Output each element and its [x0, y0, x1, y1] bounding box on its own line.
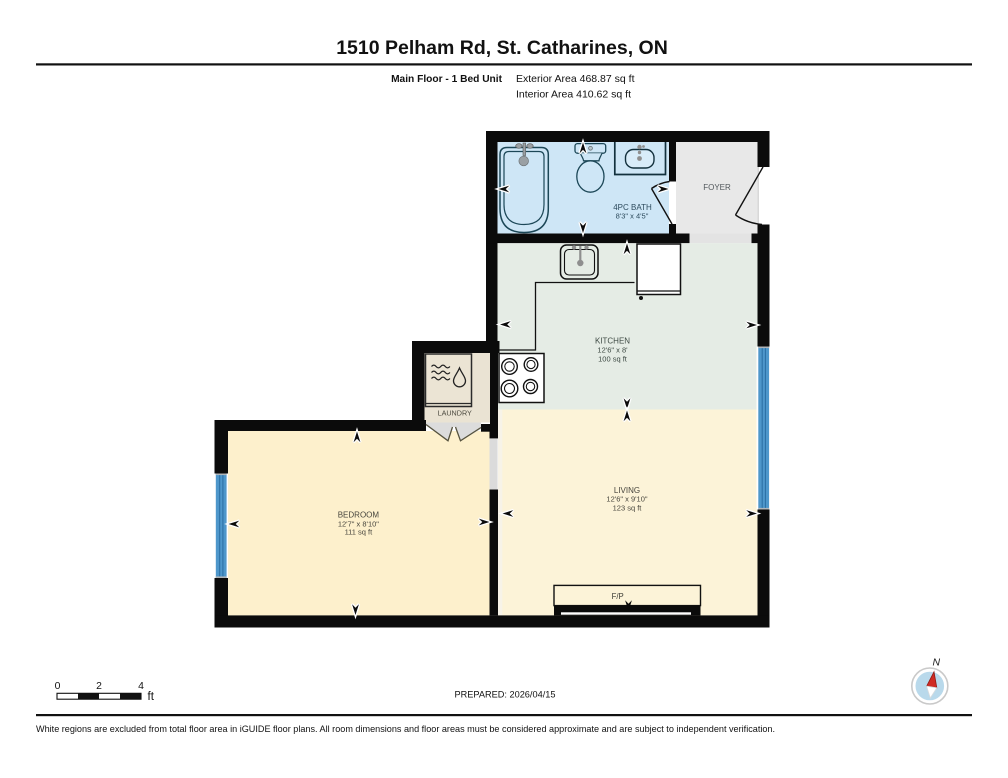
svg-text:123 sq ft: 123 sq ft [613, 503, 643, 512]
svg-text:4: 4 [138, 681, 144, 692]
svg-text:0: 0 [55, 681, 61, 692]
svg-text:LAUNDRY: LAUNDRY [438, 409, 472, 418]
svg-text:N: N [933, 656, 941, 668]
svg-text:111 sq ft: 111 sq ft [345, 528, 374, 537]
svg-text:F/P: F/P [612, 592, 624, 601]
svg-text:White regions are excluded fro: White regions are excluded from total fl… [36, 724, 775, 734]
svg-text:Main Floor - 1 Bed Unit: Main Floor - 1 Bed Unit [391, 74, 503, 85]
svg-text:12'6" x 9'10": 12'6" x 9'10" [606, 495, 647, 504]
svg-text:2: 2 [96, 681, 102, 692]
svg-text:12'6" x 8': 12'6" x 8' [597, 345, 628, 354]
svg-text:KITCHEN: KITCHEN [595, 336, 630, 345]
svg-text:FOYER: FOYER [703, 183, 731, 192]
svg-text:Exterior Area 468.87 sq ft: Exterior Area 468.87 sq ft [516, 73, 635, 85]
svg-text:LIVING: LIVING [614, 486, 640, 495]
svg-text:100 sq ft: 100 sq ft [598, 354, 628, 363]
svg-text:1510 Pelham Rd, St. Catharines: 1510 Pelham Rd, St. Catharines, ON [336, 37, 668, 59]
svg-text:ft: ft [148, 691, 155, 703]
svg-text:BEDROOM: BEDROOM [338, 511, 380, 520]
svg-text:8'3" x 4'5": 8'3" x 4'5" [616, 212, 649, 221]
svg-text:PREPARED: 2026/04/15: PREPARED: 2026/04/15 [455, 690, 556, 700]
svg-text:Interior Area 410.62 sq ft: Interior Area 410.62 sq ft [516, 89, 631, 101]
